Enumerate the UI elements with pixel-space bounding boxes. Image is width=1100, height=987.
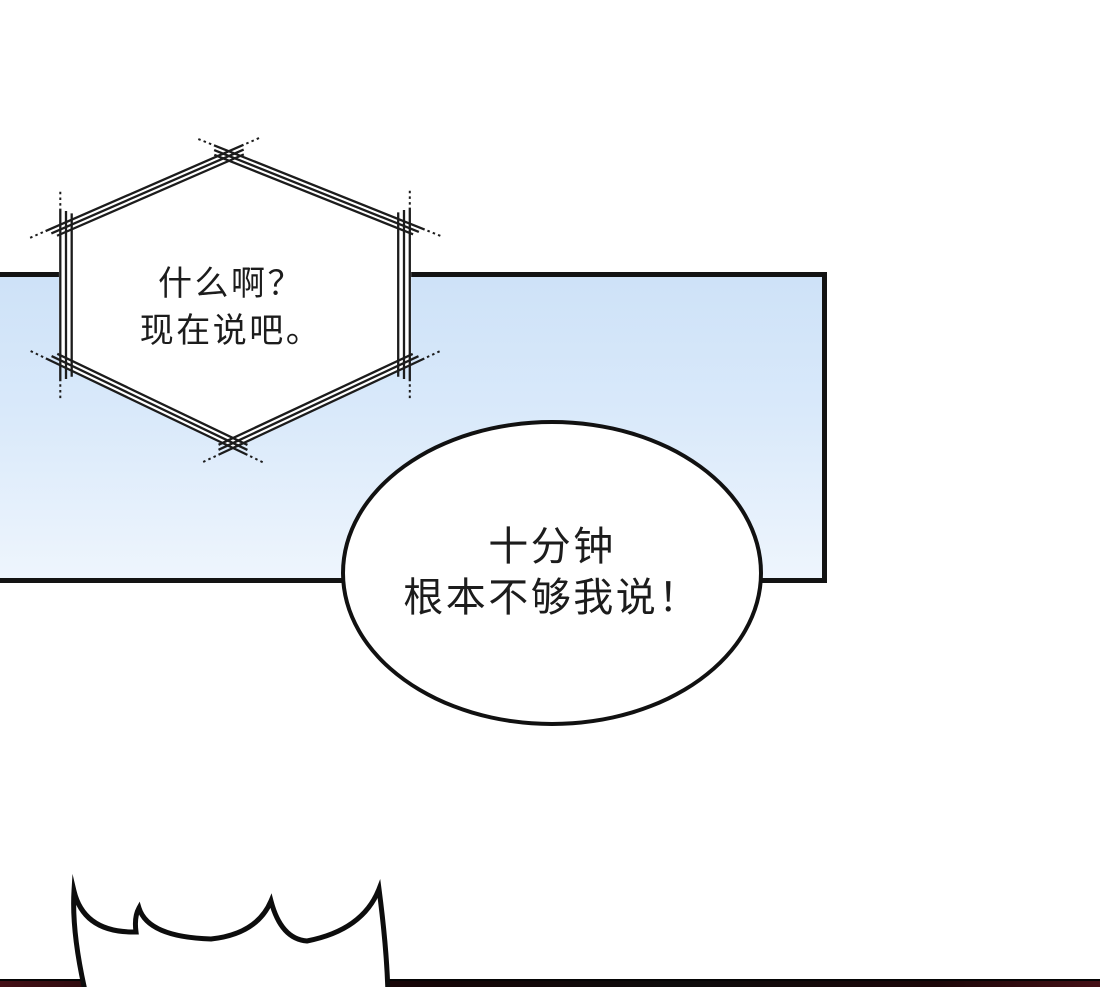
burst-speech-bubble xyxy=(74,889,388,987)
hexagon-bubble-text: 什么啊？ 现在说吧。 xyxy=(64,261,398,355)
speech-line: 根本不够我说！ xyxy=(403,573,701,624)
oval-bubble-text: 十分钟 根本不够我说！ xyxy=(403,522,701,624)
speech-line: 现在说吧。 xyxy=(64,308,398,355)
comic-page: 什么啊？ 现在说吧。 十分钟 根本不够我说！ xyxy=(0,0,1100,987)
speech-line: 什么啊？ xyxy=(64,261,398,308)
oval-speech-bubble: 十分钟 根本不够我说！ xyxy=(341,420,763,726)
speech-line: 十分钟 xyxy=(403,522,701,573)
